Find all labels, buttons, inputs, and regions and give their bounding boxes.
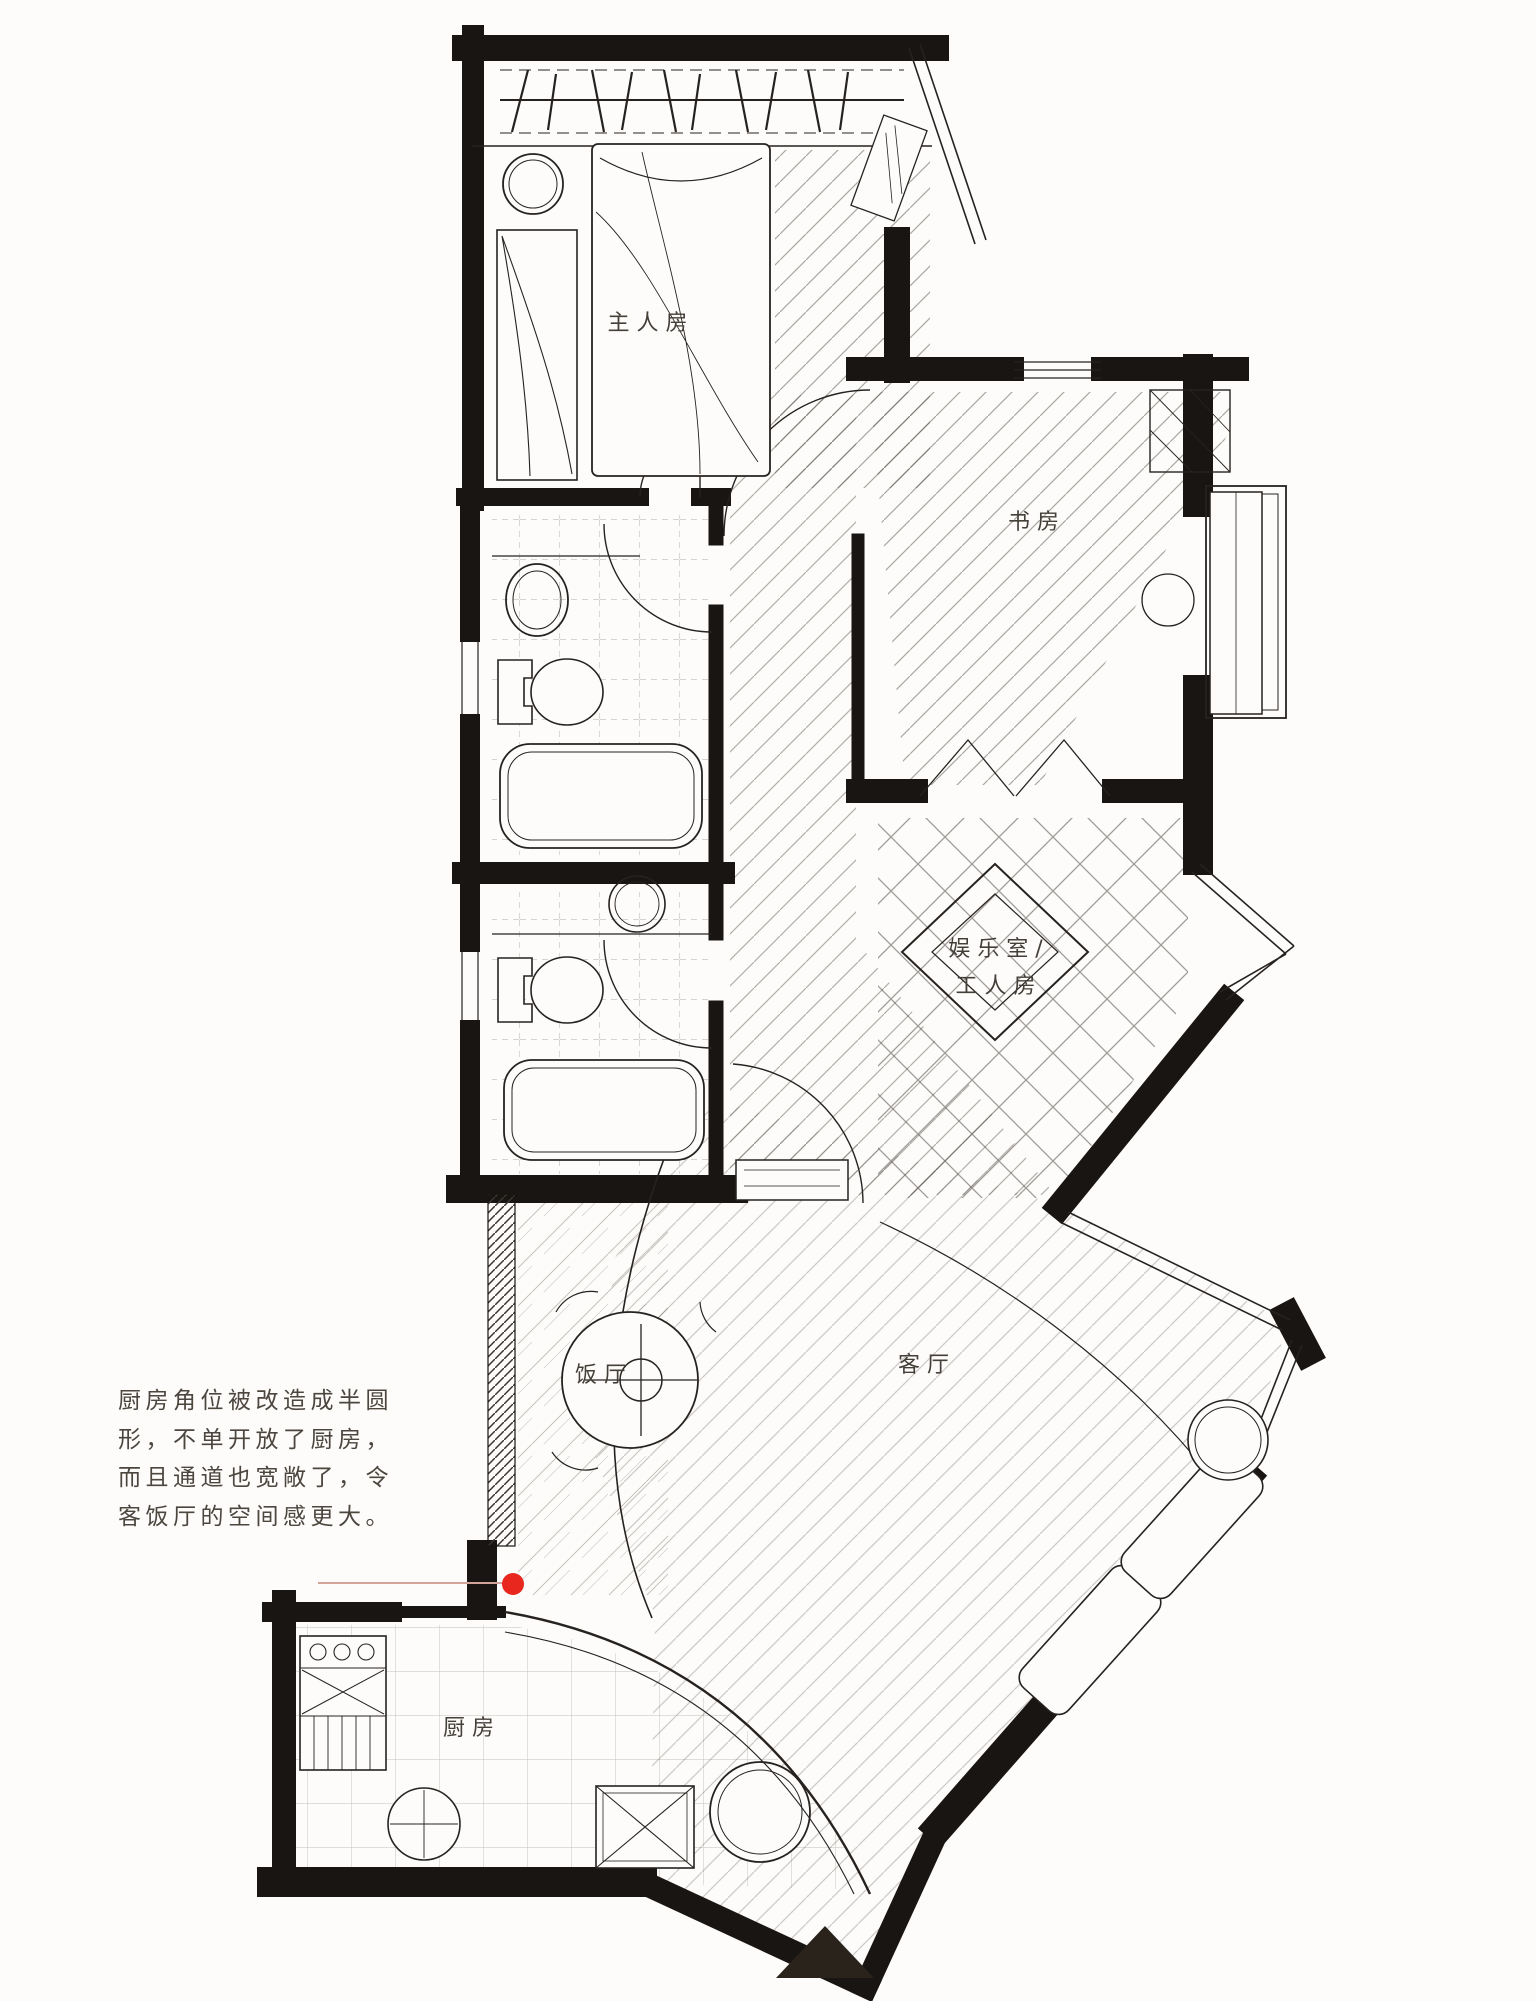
caption-leader-line xyxy=(318,1582,508,1584)
wall-bay-pillar xyxy=(1288,1316,1307,1352)
room-label-living-room: 客厅 xyxy=(898,1347,956,1379)
entertainment-floor xyxy=(878,818,1188,1198)
wardrobe xyxy=(497,230,577,480)
page: 主人房 书房 娱乐室/ 工人房 饭厅 客厅 厨房 厨房角位被改造成半圆 形，不单… xyxy=(0,0,1536,2001)
room-label-kitchen: 厨房 xyxy=(443,1710,501,1742)
room-label-master-bedroom: 主人房 xyxy=(607,305,694,337)
room-label-text: 娱乐室/ xyxy=(948,931,1049,968)
corridor-parquet xyxy=(730,395,856,1190)
room-label-study: 书房 xyxy=(1008,504,1066,536)
toilet-1-bowl xyxy=(531,659,603,725)
side-table xyxy=(1188,1400,1268,1480)
room-label-dining-room: 饭厅 xyxy=(575,1357,633,1389)
bathtub-2 xyxy=(504,1060,704,1160)
floor-plan-drawing xyxy=(0,0,1536,2001)
room-label-text: 书房 xyxy=(1008,510,1066,535)
caption-line: 厨房角位被改造成半圆 xyxy=(118,1382,393,1421)
room-label-text: 工人房 xyxy=(948,968,1049,1005)
caption: 厨房角位被改造成半圆 形，不单开放了厨房， 而且通道也宽敞了，令 客饭厅的空间感… xyxy=(118,1382,393,1536)
study-parquet xyxy=(870,392,1230,785)
red-marker-dot xyxy=(502,1573,524,1595)
study-chair xyxy=(1142,574,1194,626)
window-study-top xyxy=(1014,362,1101,378)
wall-dining-hatched xyxy=(488,1194,515,1546)
room-label-text: 主人房 xyxy=(607,311,694,336)
caption-line: 而且通道也宽敞了，令 xyxy=(118,1459,393,1498)
toilet-2-bowl xyxy=(531,957,603,1023)
bathtub-1 xyxy=(500,744,702,848)
room-label-entertainment-worker-room: 娱乐室/ 工人房 xyxy=(948,931,1049,1005)
wall-column-stub xyxy=(467,1540,497,1620)
room-label-text: 饭厅 xyxy=(575,1363,633,1388)
tv-cabinet xyxy=(736,1160,848,1200)
window-entertainment-bay xyxy=(1192,864,1294,1000)
planter xyxy=(710,1762,810,1862)
caption-line: 客饭厅的空间感更大。 xyxy=(118,1498,393,1537)
vanity-basin xyxy=(503,154,563,214)
floor-textures xyxy=(292,150,1288,1982)
room-label-text: 客厅 xyxy=(898,1353,956,1378)
caption-line: 形，不单开放了厨房， xyxy=(118,1421,393,1460)
room-label-text: 厨房 xyxy=(443,1716,501,1741)
